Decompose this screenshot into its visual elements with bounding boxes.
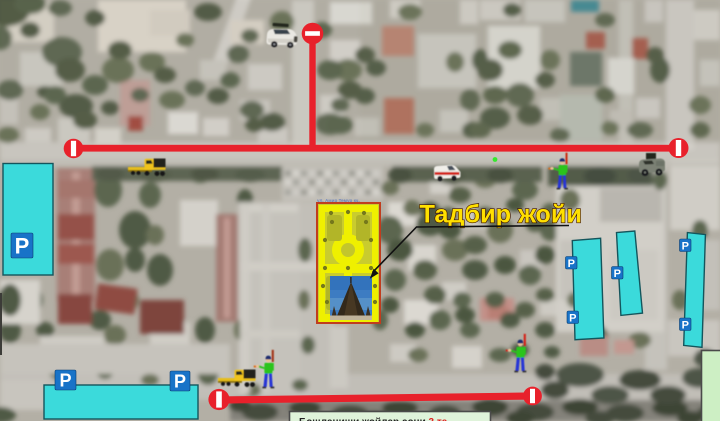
svg-text:P: P [15,234,30,259]
svg-text:P: P [682,240,689,252]
svg-text:P: P [682,319,689,331]
svg-text:Бошланиши жойлар сони 3 та: Бошланиши жойлар сони 3 та [299,417,448,421]
svg-text:P: P [59,370,71,390]
svg-text:P: P [614,268,621,280]
svg-text:P: P [174,371,186,391]
svg-text:P: P [568,258,575,270]
svg-text:P: P [569,312,576,324]
svg-text:Тадбир жойи: Тадбир жойи [420,201,582,229]
